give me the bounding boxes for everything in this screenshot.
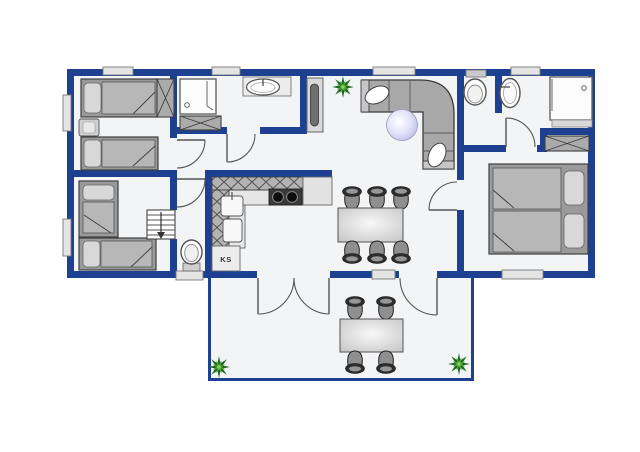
floor-lamp-icon bbox=[387, 110, 418, 141]
wall-bath2-bottom bbox=[457, 145, 506, 152]
garden-table bbox=[340, 319, 403, 352]
window-dining-bottom bbox=[372, 270, 395, 279]
pillow bbox=[83, 185, 114, 200]
wall-bedroom3-top bbox=[540, 128, 595, 135]
stove-icon bbox=[269, 189, 302, 205]
upper-cabinets-top bbox=[212, 177, 303, 190]
pillow bbox=[83, 241, 100, 267]
window-living-top bbox=[373, 67, 415, 75]
pillow bbox=[84, 140, 101, 167]
wall-kitchen-top bbox=[205, 170, 332, 177]
window-bedroom3-bottom bbox=[502, 270, 543, 279]
pillow bbox=[564, 214, 584, 248]
wc bbox=[181, 240, 202, 271]
dining-area bbox=[338, 187, 411, 264]
wall-living-right-upper bbox=[457, 76, 464, 180]
wall-bedroom1-bottom bbox=[67, 170, 177, 177]
window-bedroom2-left bbox=[63, 219, 71, 256]
wall-bedroom2-right-lower bbox=[170, 239, 177, 271]
wardrobe-1 bbox=[157, 79, 174, 117]
window-wc-bottom bbox=[176, 271, 203, 280]
hall-cabinet bbox=[307, 78, 323, 132]
wall-bath1-right bbox=[300, 69, 307, 134]
wall-bottom-left bbox=[67, 271, 257, 278]
shower-bench bbox=[552, 120, 592, 127]
wardrobe-2 bbox=[180, 116, 221, 130]
window-bedroom1-left bbox=[63, 95, 71, 131]
wall-living-right-lower bbox=[457, 210, 464, 271]
floor-plan-drawing: KS bbox=[0, 0, 640, 452]
toilet2-cistern bbox=[466, 70, 486, 77]
pillow bbox=[564, 171, 584, 205]
window-bath1-top bbox=[212, 67, 240, 75]
dining-table bbox=[338, 208, 403, 242]
window-bath2-top bbox=[511, 67, 540, 75]
wardrobe-3 bbox=[545, 136, 589, 151]
entry-steps bbox=[147, 210, 175, 239]
wall-bedroom2-right-upper bbox=[170, 177, 177, 210]
window-bedroom1-top bbox=[103, 67, 133, 75]
plant-terrace-right bbox=[448, 353, 470, 375]
pillow bbox=[84, 83, 101, 113]
refrigerator: KS bbox=[212, 246, 240, 271]
fridge-label: KS bbox=[220, 255, 231, 264]
double-bed bbox=[489, 164, 588, 254]
pantry-cabinet bbox=[303, 177, 332, 205]
wall-kitchen-left bbox=[205, 177, 212, 271]
floor-plan: KS bbox=[0, 0, 640, 452]
plant-terrace-left bbox=[208, 356, 230, 378]
wall-bath1-bottom-right bbox=[260, 127, 307, 134]
plant-living bbox=[332, 76, 354, 98]
shower-icon bbox=[550, 77, 592, 120]
